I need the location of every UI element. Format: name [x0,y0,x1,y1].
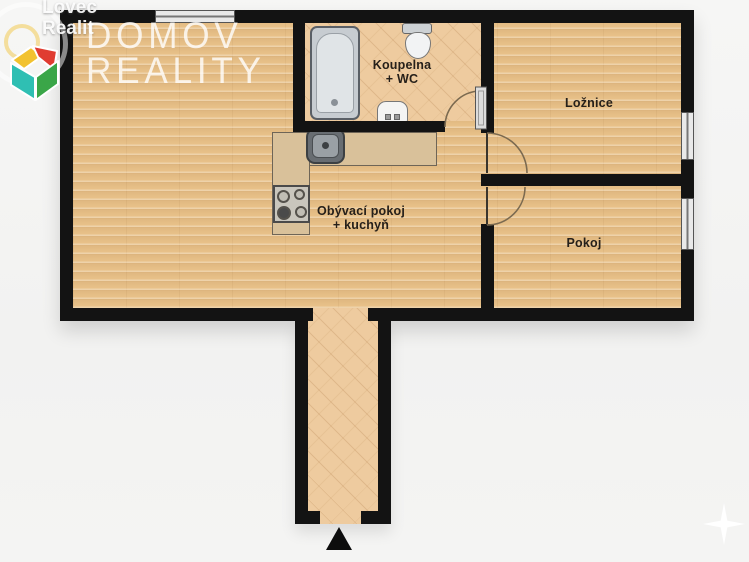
floorplan-canvas: Koupelna + WC Ložnice Pokoj Obývací poko… [0,0,749,562]
entrance-arrow-icon [326,527,352,550]
bathroom-label-line2: + WC [373,72,432,86]
small-room-label: Pokoj [566,236,601,250]
bedroom-door-arc [487,133,527,173]
bathroom-door-leaf [476,87,487,129]
living-room-label: Obývací pokoj + kuchyň [317,204,405,232]
bedroom-label: Ložnice [565,96,613,110]
bathroom-label-line1: Koupelna [373,58,432,72]
bathroom-label: Koupelna + WC [373,58,432,86]
living-room-label-line1: Obývací pokoj [317,204,405,218]
living-room-label-line2: + kuchyň [317,218,405,232]
small-room-door-arc [487,187,525,225]
